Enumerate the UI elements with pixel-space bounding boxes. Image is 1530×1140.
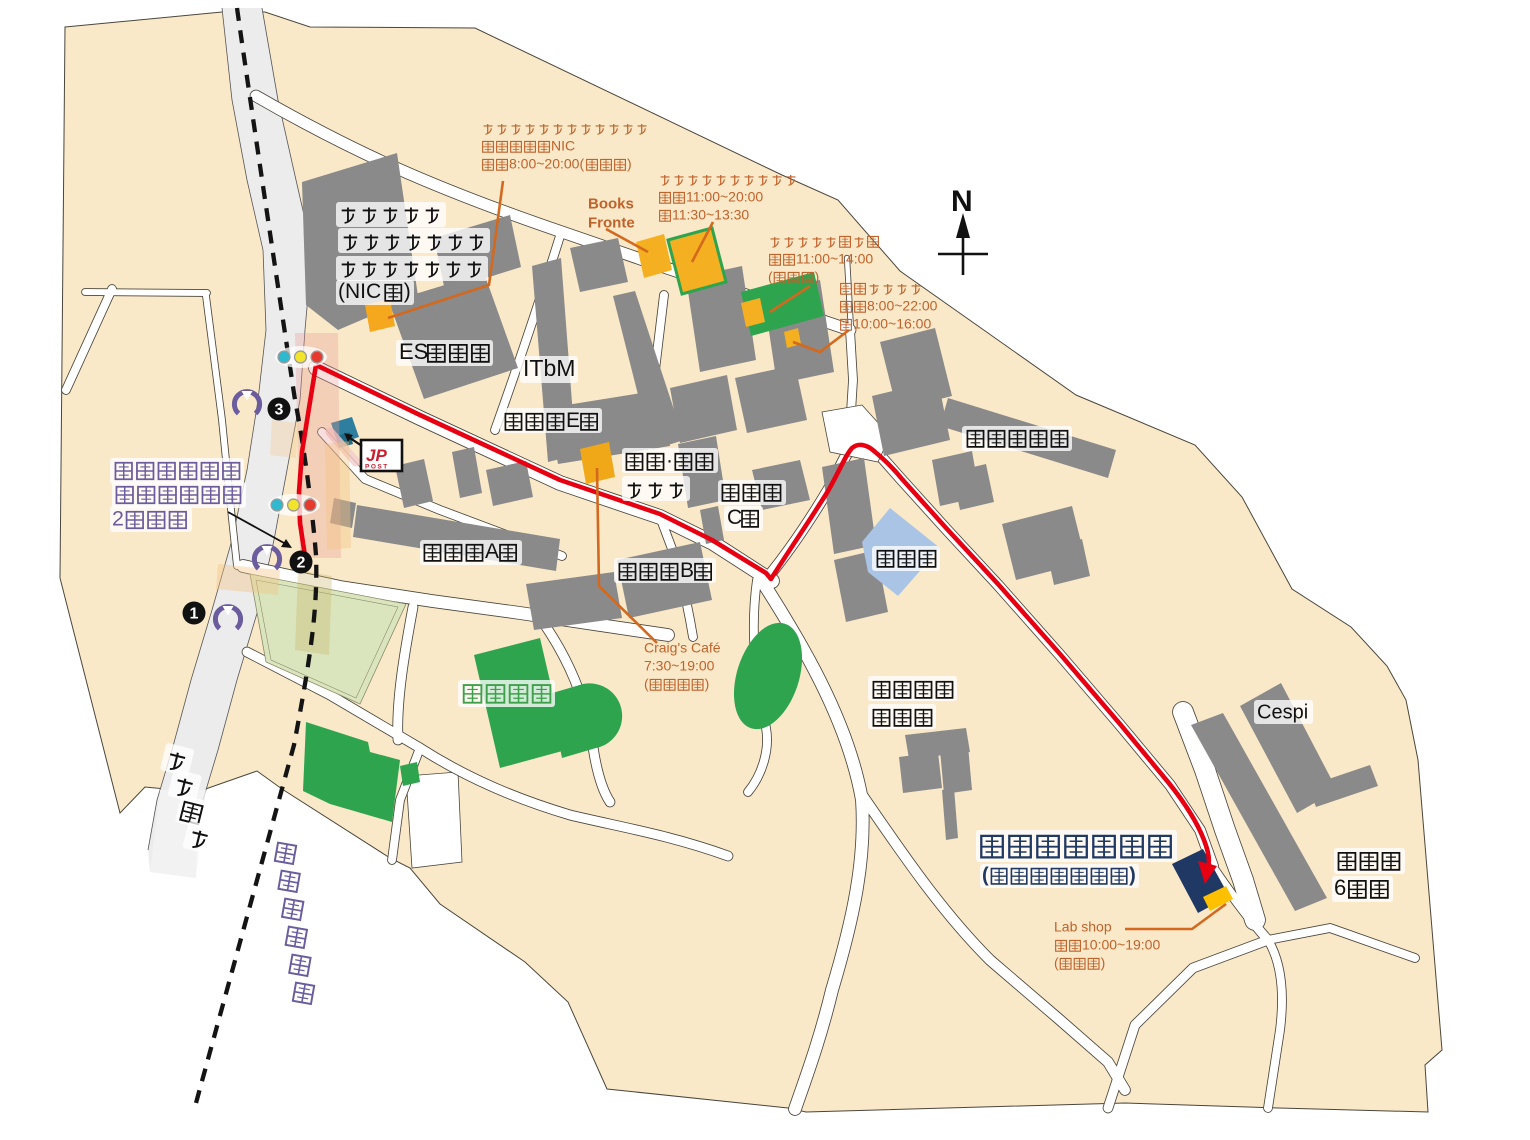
svg-text:N: N — [951, 185, 973, 218]
svg-text:A: A — [485, 540, 499, 563]
svg-text:·: · — [666, 449, 673, 472]
svg-text:(: ( — [768, 269, 773, 285]
svg-text:): ) — [1101, 955, 1106, 971]
svg-text:E: E — [566, 409, 580, 432]
svg-text:Books: Books — [588, 195, 634, 212]
svg-text:1: 1 — [190, 606, 199, 623]
svg-text:(: ( — [644, 676, 649, 692]
svg-text:10:00~19:00: 10:00~19:00 — [1082, 937, 1160, 953]
svg-text:11:30~13:30: 11:30~13:30 — [672, 207, 749, 223]
svg-text:C: C — [727, 506, 742, 529]
svg-text:): ) — [815, 269, 820, 285]
svg-text:11:00~14:00: 11:00~14:00 — [796, 251, 873, 267]
svg-text:Fronte: Fronte — [588, 214, 635, 231]
svg-text:): ) — [404, 280, 411, 303]
svg-text:(: ( — [1054, 955, 1059, 971]
svg-text:B: B — [680, 559, 694, 582]
svg-text:): ) — [1129, 864, 1136, 886]
svg-text:ES: ES — [399, 339, 428, 364]
svg-text:ITbM: ITbM — [523, 355, 575, 381]
svg-text:3: 3 — [275, 402, 284, 419]
svg-text:NIC: NIC — [551, 138, 575, 154]
svg-text:Cespi: Cespi — [1257, 701, 1308, 723]
svg-text:11:00~20:00: 11:00~20:00 — [686, 189, 763, 205]
svg-text:Lab shop: Lab shop — [1054, 919, 1112, 935]
svg-text:Craig's Café: Craig's Café — [644, 640, 721, 656]
svg-text:6: 6 — [1334, 875, 1346, 900]
svg-text:10:00~16:00: 10:00~16:00 — [853, 316, 931, 332]
svg-text:(: ( — [982, 864, 989, 886]
svg-text:): ) — [627, 156, 632, 172]
svg-text:2: 2 — [297, 555, 306, 572]
svg-text:JP: JP — [366, 446, 387, 465]
svg-text:): ) — [705, 676, 710, 692]
svg-text:8:00~20:00(: 8:00~20:00( — [509, 156, 584, 172]
svg-text:7:30~19:00: 7:30~19:00 — [644, 658, 715, 674]
svg-text:(NIC: (NIC — [338, 280, 381, 303]
svg-text:POST: POST — [365, 464, 389, 471]
svg-text:8:00~22:00: 8:00~22:00 — [867, 298, 938, 314]
svg-text:2: 2 — [112, 507, 124, 531]
